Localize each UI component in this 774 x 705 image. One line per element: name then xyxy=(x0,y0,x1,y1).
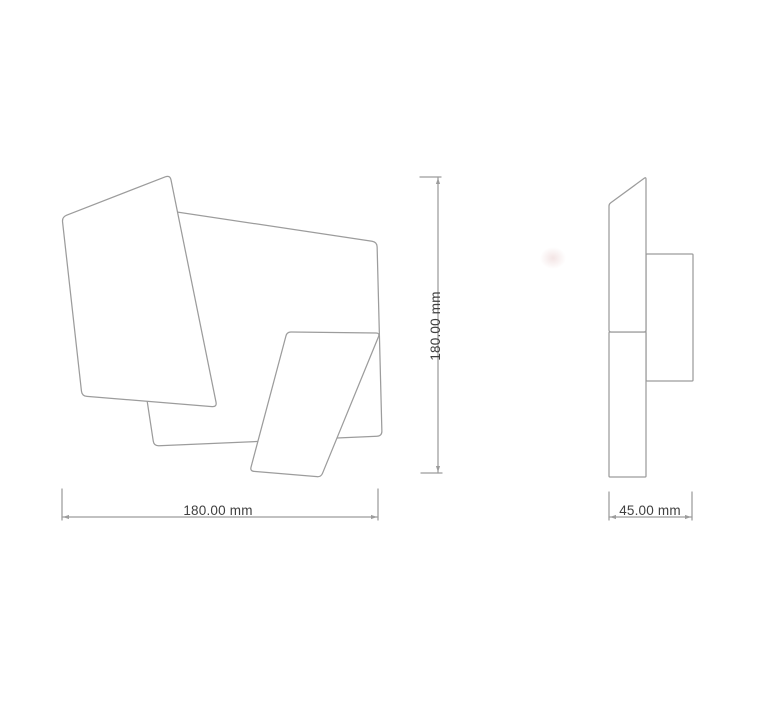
side-wall-mount-shape xyxy=(646,254,693,381)
front-height-label: 180.00 mm xyxy=(428,291,443,360)
side-upper-panel-shape xyxy=(609,178,646,332)
front-height-dimension: 180.00 mm xyxy=(420,177,443,473)
side-depth-arrowhead-0 xyxy=(610,515,616,519)
front-width-label: 180.00 mm xyxy=(183,503,252,518)
front-width-arrowhead-1 xyxy=(371,515,377,519)
technical-drawing: 180.00 mm180.00 mm45.00 mm xyxy=(0,0,774,705)
front-height-arrowhead-1 xyxy=(436,466,440,472)
side-depth-dimension: 45.00 mm xyxy=(609,492,692,520)
side-depth-label: 45.00 mm xyxy=(619,503,681,518)
side-depth-arrowhead-1 xyxy=(685,515,691,519)
shapes-layer xyxy=(62,176,693,477)
front-width-arrowhead-0 xyxy=(63,515,69,519)
front-left-panel-shape xyxy=(62,176,216,406)
drawing-svg: 180.00 mm180.00 mm45.00 mm xyxy=(0,0,774,705)
front-height-arrowhead-0 xyxy=(436,178,440,184)
front-width-dimension: 180.00 mm xyxy=(62,489,378,520)
side-lower-panel-shape xyxy=(609,332,646,477)
